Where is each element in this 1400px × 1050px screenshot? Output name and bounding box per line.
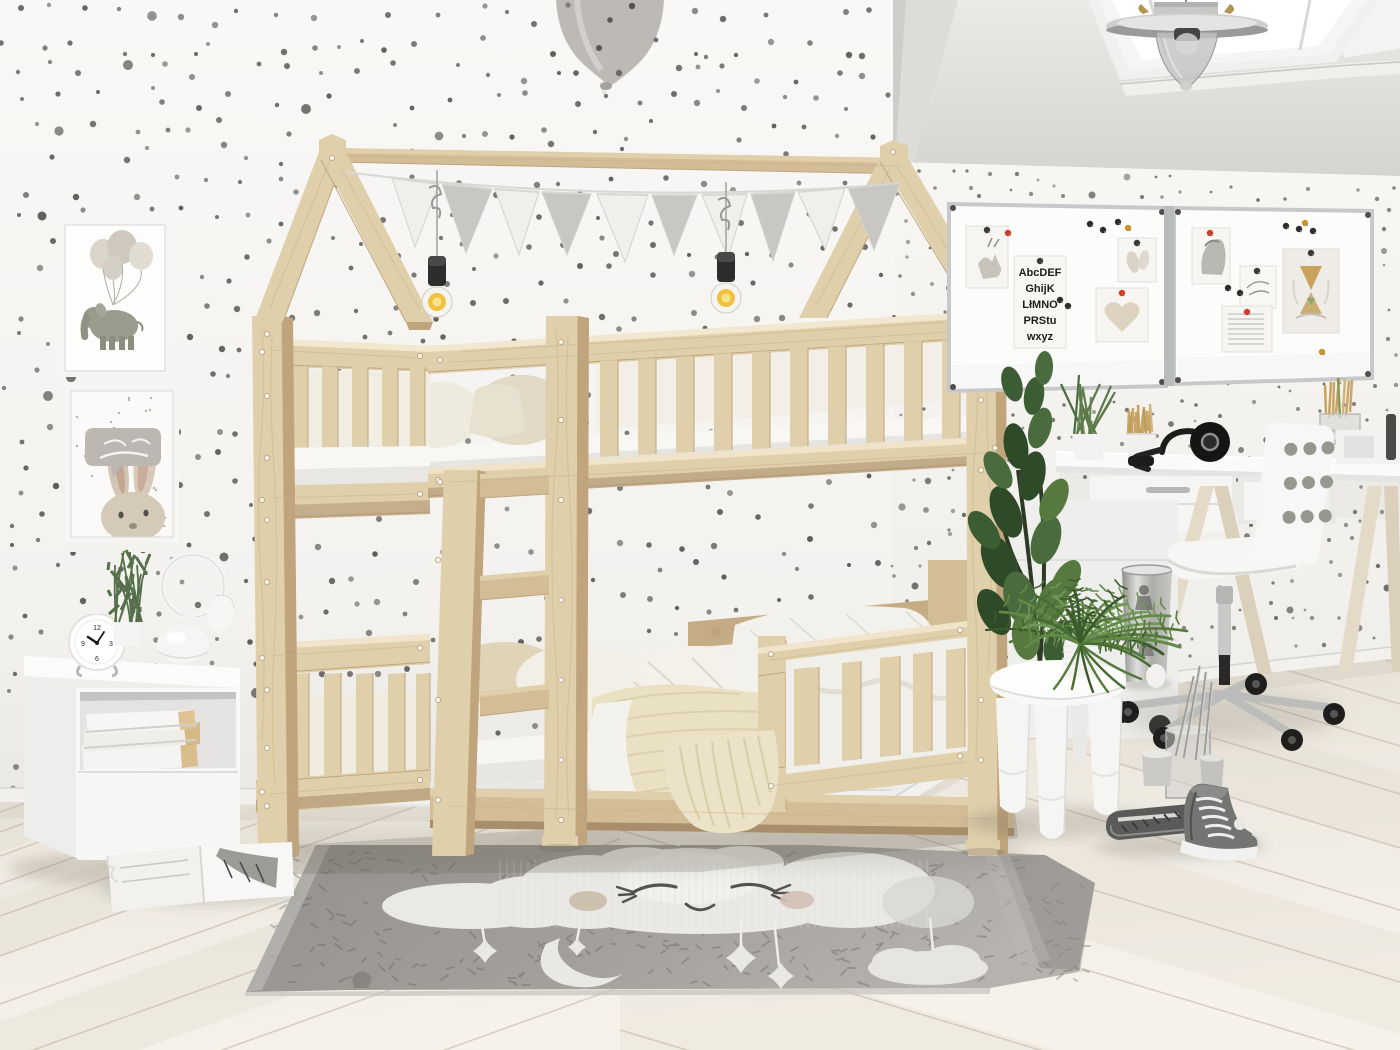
svg-text:wxyz: wxyz (1026, 331, 1054, 343)
svg-text:AbcDEF: AbcDEF (1019, 267, 1062, 279)
svg-text:12: 12 (93, 625, 101, 632)
svg-text:3: 3 (109, 641, 113, 648)
svg-text:6: 6 (95, 656, 99, 663)
svg-text:PRStu: PRStu (1024, 315, 1057, 327)
svg-text:9: 9 (81, 641, 85, 648)
svg-text:LłMNO: LłMNO (1022, 299, 1058, 311)
svg-text:GhijK: GhijK (1025, 283, 1054, 295)
